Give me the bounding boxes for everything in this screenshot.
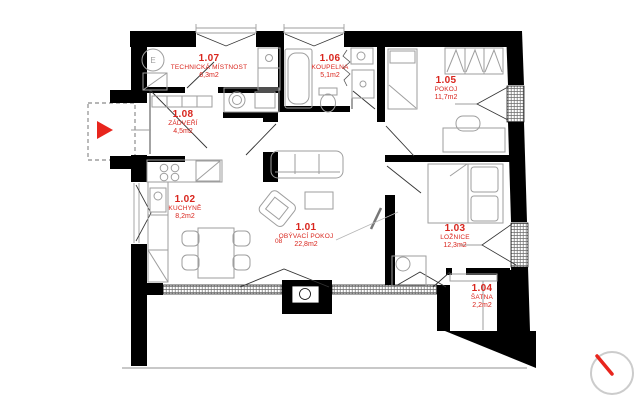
fridge (148, 250, 168, 282)
kitchen-counter (147, 160, 222, 282)
tv (371, 208, 381, 229)
stove-burner (160, 173, 168, 181)
north-needle (597, 356, 612, 374)
door-technicka (187, 62, 214, 88)
desk-pokoj (443, 116, 505, 152)
window-pokoj (507, 86, 524, 122)
door-pokoj (386, 126, 414, 156)
chair (182, 255, 199, 270)
door-zadveri-living (246, 124, 276, 155)
pillow (471, 167, 498, 192)
chair (182, 231, 199, 246)
door-koupelna (353, 91, 375, 109)
armchair (257, 189, 297, 229)
desk-loznice (392, 256, 426, 286)
pillow (471, 196, 498, 221)
floor-plan-page: E (0, 0, 640, 400)
compass-icon (591, 352, 633, 394)
door-loznice (387, 166, 421, 193)
shower-curtain (343, 50, 350, 86)
coffee-table (305, 192, 333, 209)
chair (233, 231, 250, 246)
electric-meter-label: E (150, 56, 155, 65)
desk-chair (396, 257, 410, 271)
terrace-glass-wall-left (163, 285, 282, 294)
door-number-label: 08 (275, 238, 282, 245)
stove-burner (171, 173, 179, 181)
exterior-walls (110, 31, 536, 368)
closet-shelving (450, 274, 497, 330)
stove-burner (160, 164, 168, 172)
washbasin (351, 48, 373, 64)
single-bed (388, 49, 417, 109)
window-opening-lines (136, 34, 516, 265)
dining-table (182, 228, 250, 278)
bathtub (285, 49, 312, 108)
entrance-porch (88, 103, 135, 160)
window-bands (163, 86, 528, 294)
shower (343, 50, 374, 98)
desk-chair (456, 116, 480, 131)
double-bed (428, 164, 503, 223)
wardrobe (445, 48, 503, 74)
stove-burner (171, 164, 179, 172)
window-loznice (511, 223, 528, 267)
angled-corner-wall (445, 331, 536, 368)
interior-walls (147, 47, 512, 286)
entrance-door-swing (150, 90, 207, 148)
sofa (271, 151, 343, 178)
floor-plan-drawing: E (0, 0, 640, 400)
chair (233, 255, 250, 270)
utility-sink (258, 48, 280, 90)
